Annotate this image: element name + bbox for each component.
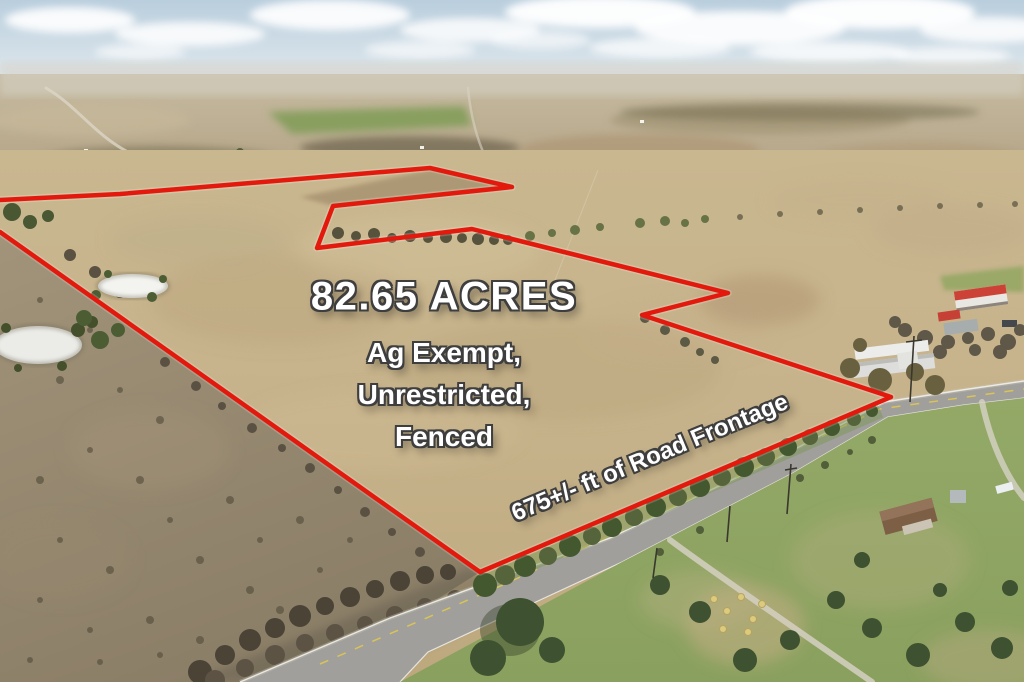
feature-line-3: Fenced xyxy=(358,416,531,458)
horizon-haze xyxy=(0,62,1024,96)
feature-line-2: Unrestricted, xyxy=(358,374,531,416)
features-label: Ag Exempt, Unrestricted, Fenced xyxy=(358,332,531,458)
property-listing-aerial-image: 82.65 ACRES Ag Exempt, Unrestricted, Fen… xyxy=(0,0,1024,682)
feature-line-1: Ag Exempt, xyxy=(358,332,531,374)
acreage-label: 82.65 ACRES xyxy=(311,275,577,320)
